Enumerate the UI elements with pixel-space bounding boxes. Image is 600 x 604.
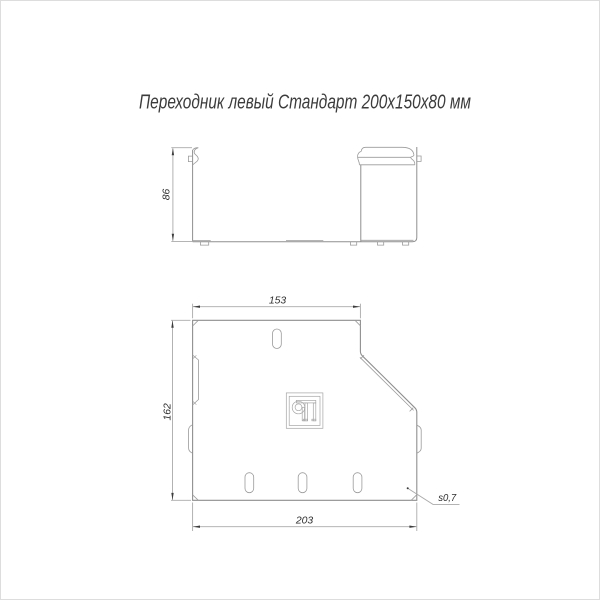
svg-text:162: 162 (163, 403, 174, 421)
svg-text:203: 203 (295, 516, 314, 527)
svg-text:153: 153 (269, 296, 287, 307)
svg-text:s0,7: s0,7 (438, 493, 457, 504)
svg-text:86: 86 (161, 189, 172, 201)
svg-text:Переходник левый Стандарт 200х: Переходник левый Стандарт 200х150х80 мм (139, 91, 471, 113)
